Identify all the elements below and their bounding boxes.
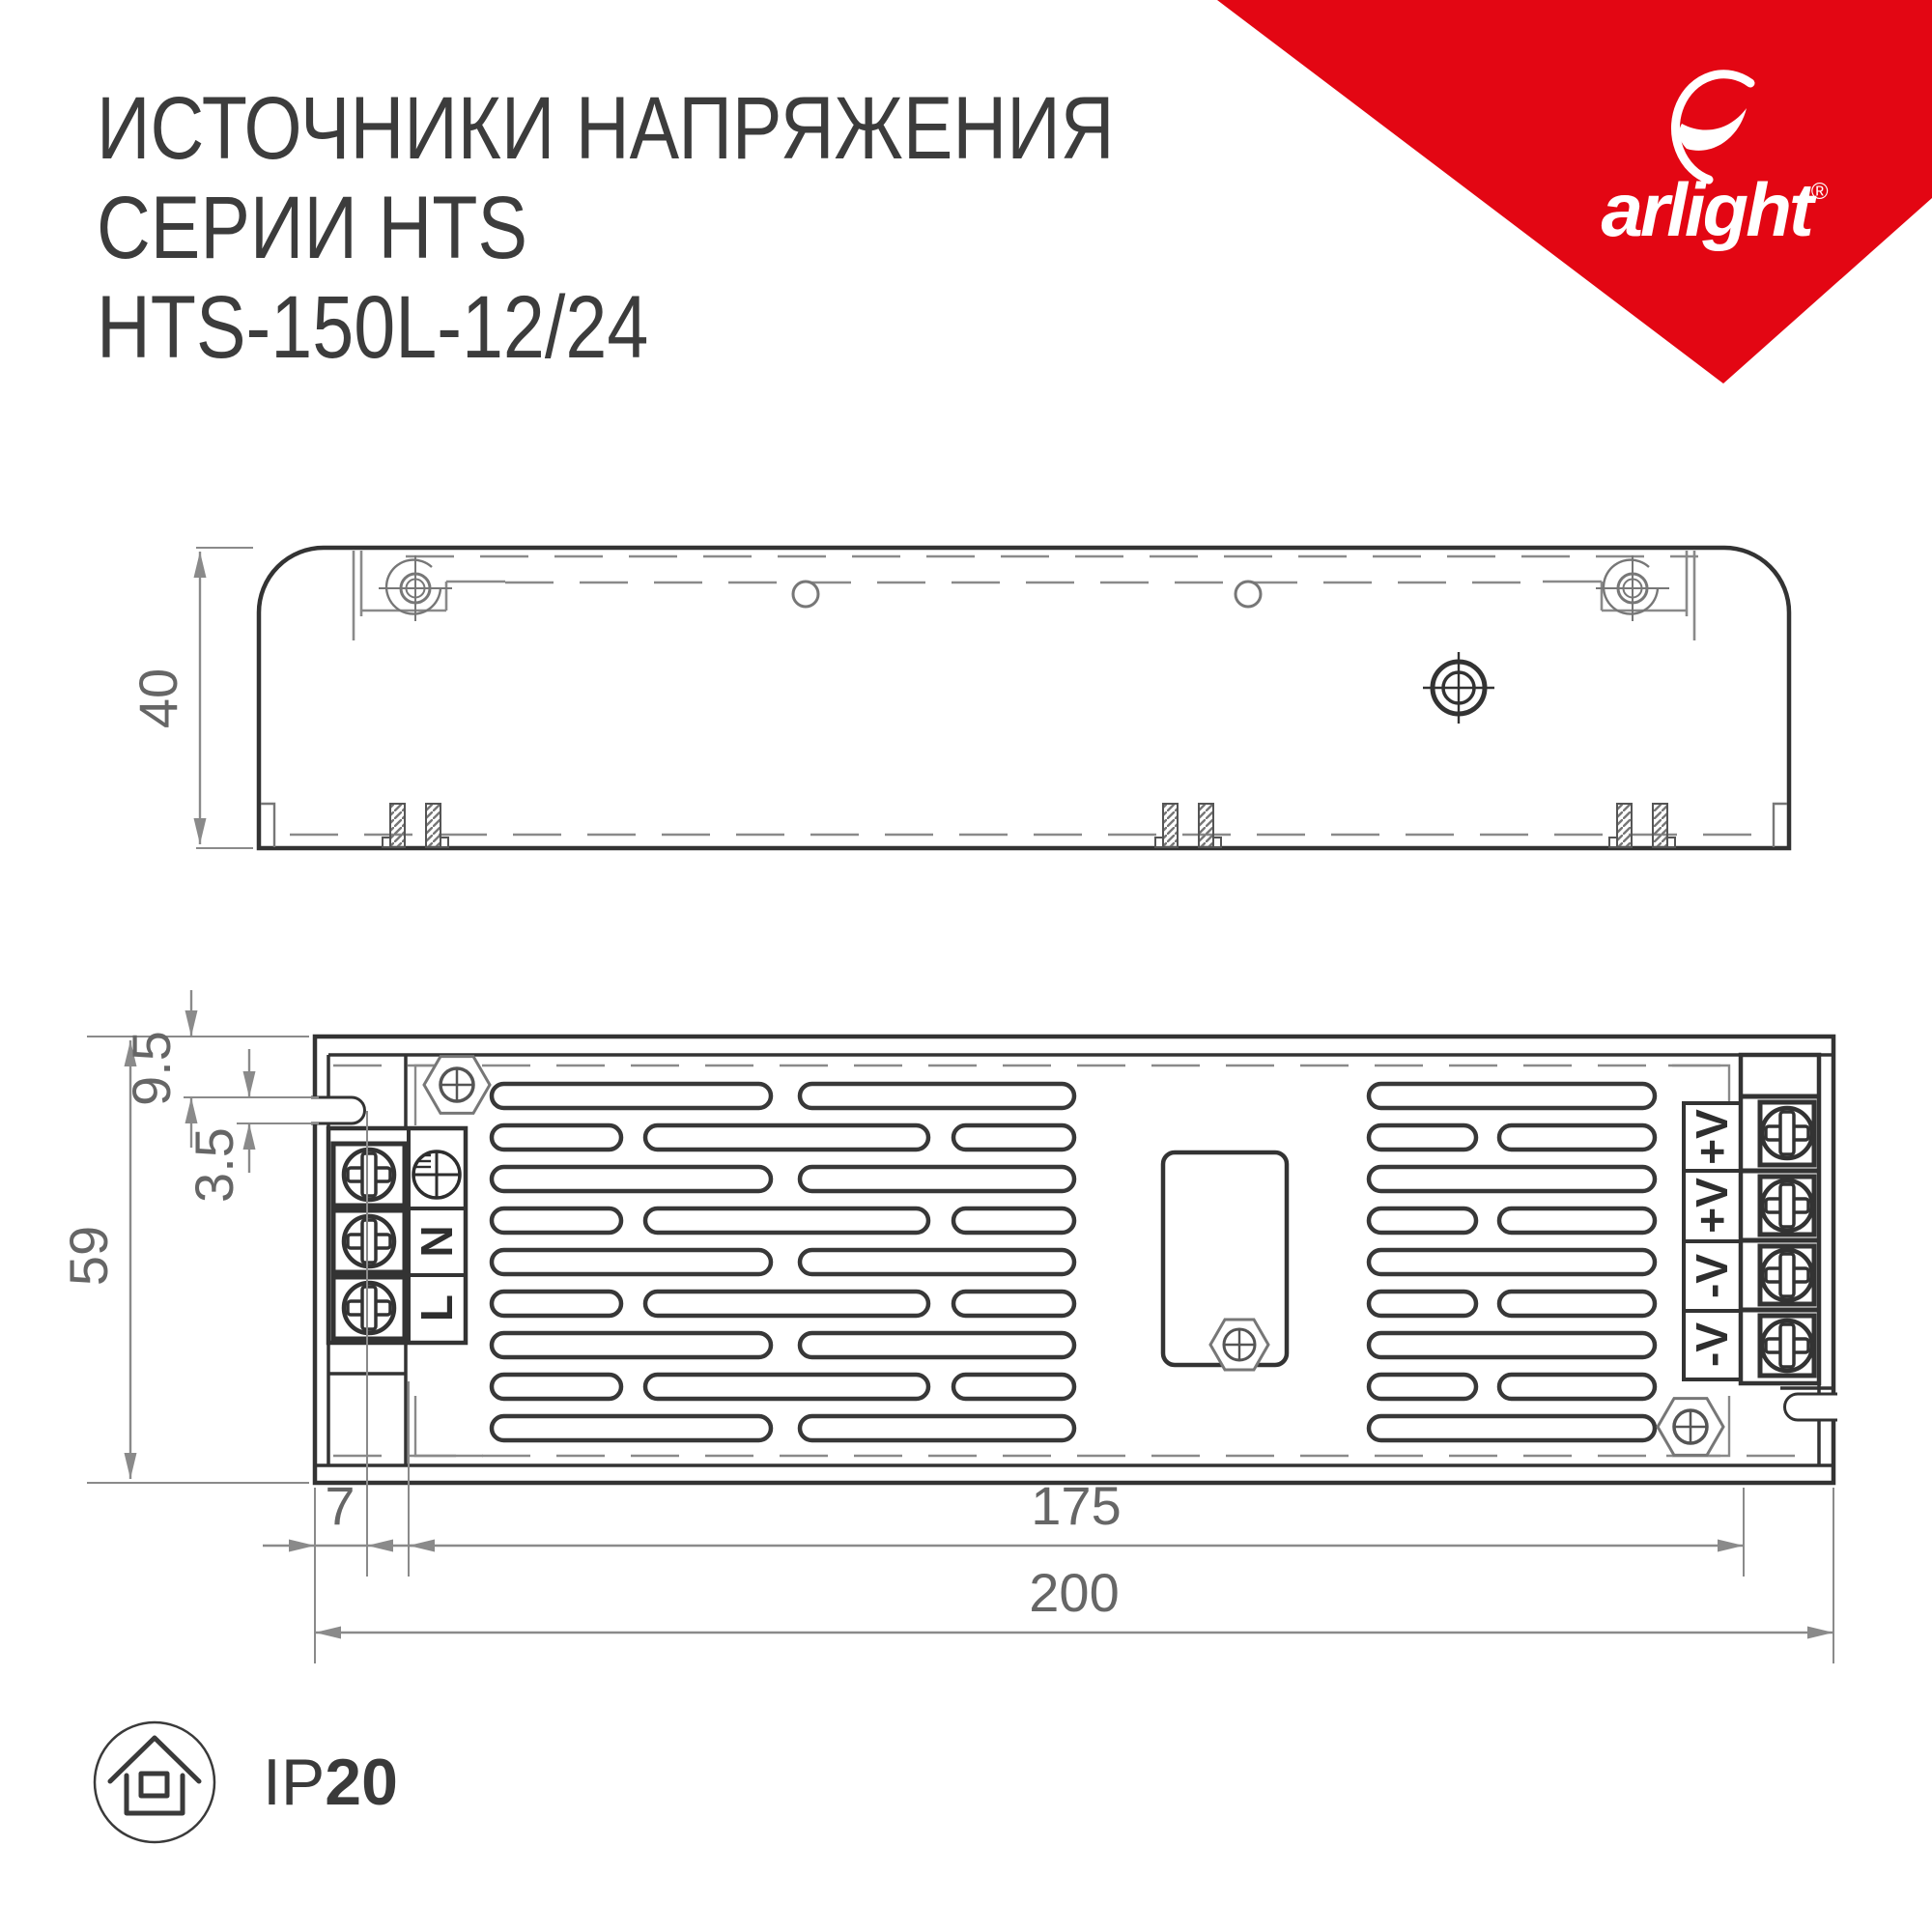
mounting-slot-right xyxy=(1785,1394,1838,1420)
ip-prefix: IP xyxy=(263,1746,325,1819)
dim-label-3-5: 3.5 xyxy=(184,1127,244,1203)
plan-view: N L xyxy=(58,990,1837,1663)
datasheet-page: 40 xyxy=(0,0,1932,1932)
title-line-2: СЕРИИ HTS xyxy=(97,179,1115,278)
page-title: ИСТОЧНИКИ НАПРЯЖЕНИЯ СЕРИИ HTS HTS-150L-… xyxy=(97,79,1115,378)
registered-trademark-icon: ® xyxy=(1811,179,1829,205)
hex-screw-top-left-icon xyxy=(424,1057,490,1114)
hex-screw-bottom-right-icon xyxy=(1658,1399,1723,1456)
ip-badge: IP20 xyxy=(95,1722,398,1842)
dimension-59: 59 xyxy=(58,1037,309,1483)
output-terminal-block: +V +V -V -V xyxy=(1684,1055,1819,1383)
cover-plate xyxy=(1163,1152,1287,1370)
dimension-40: 40 xyxy=(128,548,253,848)
ip-rating-text: IP20 xyxy=(263,1746,398,1819)
terminal-label-minusv-1: -V xyxy=(1687,1254,1737,1298)
ip-value: 20 xyxy=(325,1746,398,1819)
vent-hole-icon xyxy=(1236,582,1261,607)
dim-label-7: 7 xyxy=(325,1475,355,1536)
dim-label-175: 175 xyxy=(1031,1475,1121,1536)
side-view: 40 xyxy=(128,548,1789,848)
input-terminal-block: N L xyxy=(328,1128,466,1343)
title-line-3: HTS-150L-12/24 xyxy=(97,278,1115,378)
dim-label-59: 59 xyxy=(58,1226,119,1286)
terminal-label-neutral: N xyxy=(412,1225,462,1257)
earth-ground-icon xyxy=(413,1151,460,1198)
vent-hole-icon xyxy=(793,582,818,607)
terminal-label-line: L xyxy=(412,1294,462,1321)
terminal-label-plusv-2: +V xyxy=(1687,1178,1737,1234)
arlight-logo-text: arlight xyxy=(1601,167,1810,252)
side-view-outline xyxy=(259,548,1789,848)
title-line-1: ИСТОЧНИКИ НАПРЯЖЕНИЯ xyxy=(97,79,1115,179)
terminal-label-plusv-1: +V xyxy=(1687,1109,1737,1165)
cover-plate-hex-screw-icon xyxy=(1210,1320,1268,1370)
dim-label-9-5: 9.5 xyxy=(121,1031,182,1106)
dim-label-40: 40 xyxy=(128,668,188,728)
arlight-logo: arlight® xyxy=(1546,166,1884,254)
terminal-label-minusv-2: -V xyxy=(1687,1322,1737,1367)
mounting-slot-left xyxy=(311,1097,365,1123)
input-screws xyxy=(333,1144,405,1339)
dim-label-200: 200 xyxy=(1029,1562,1119,1623)
dimension-3-5: 3.5 xyxy=(184,1049,319,1203)
